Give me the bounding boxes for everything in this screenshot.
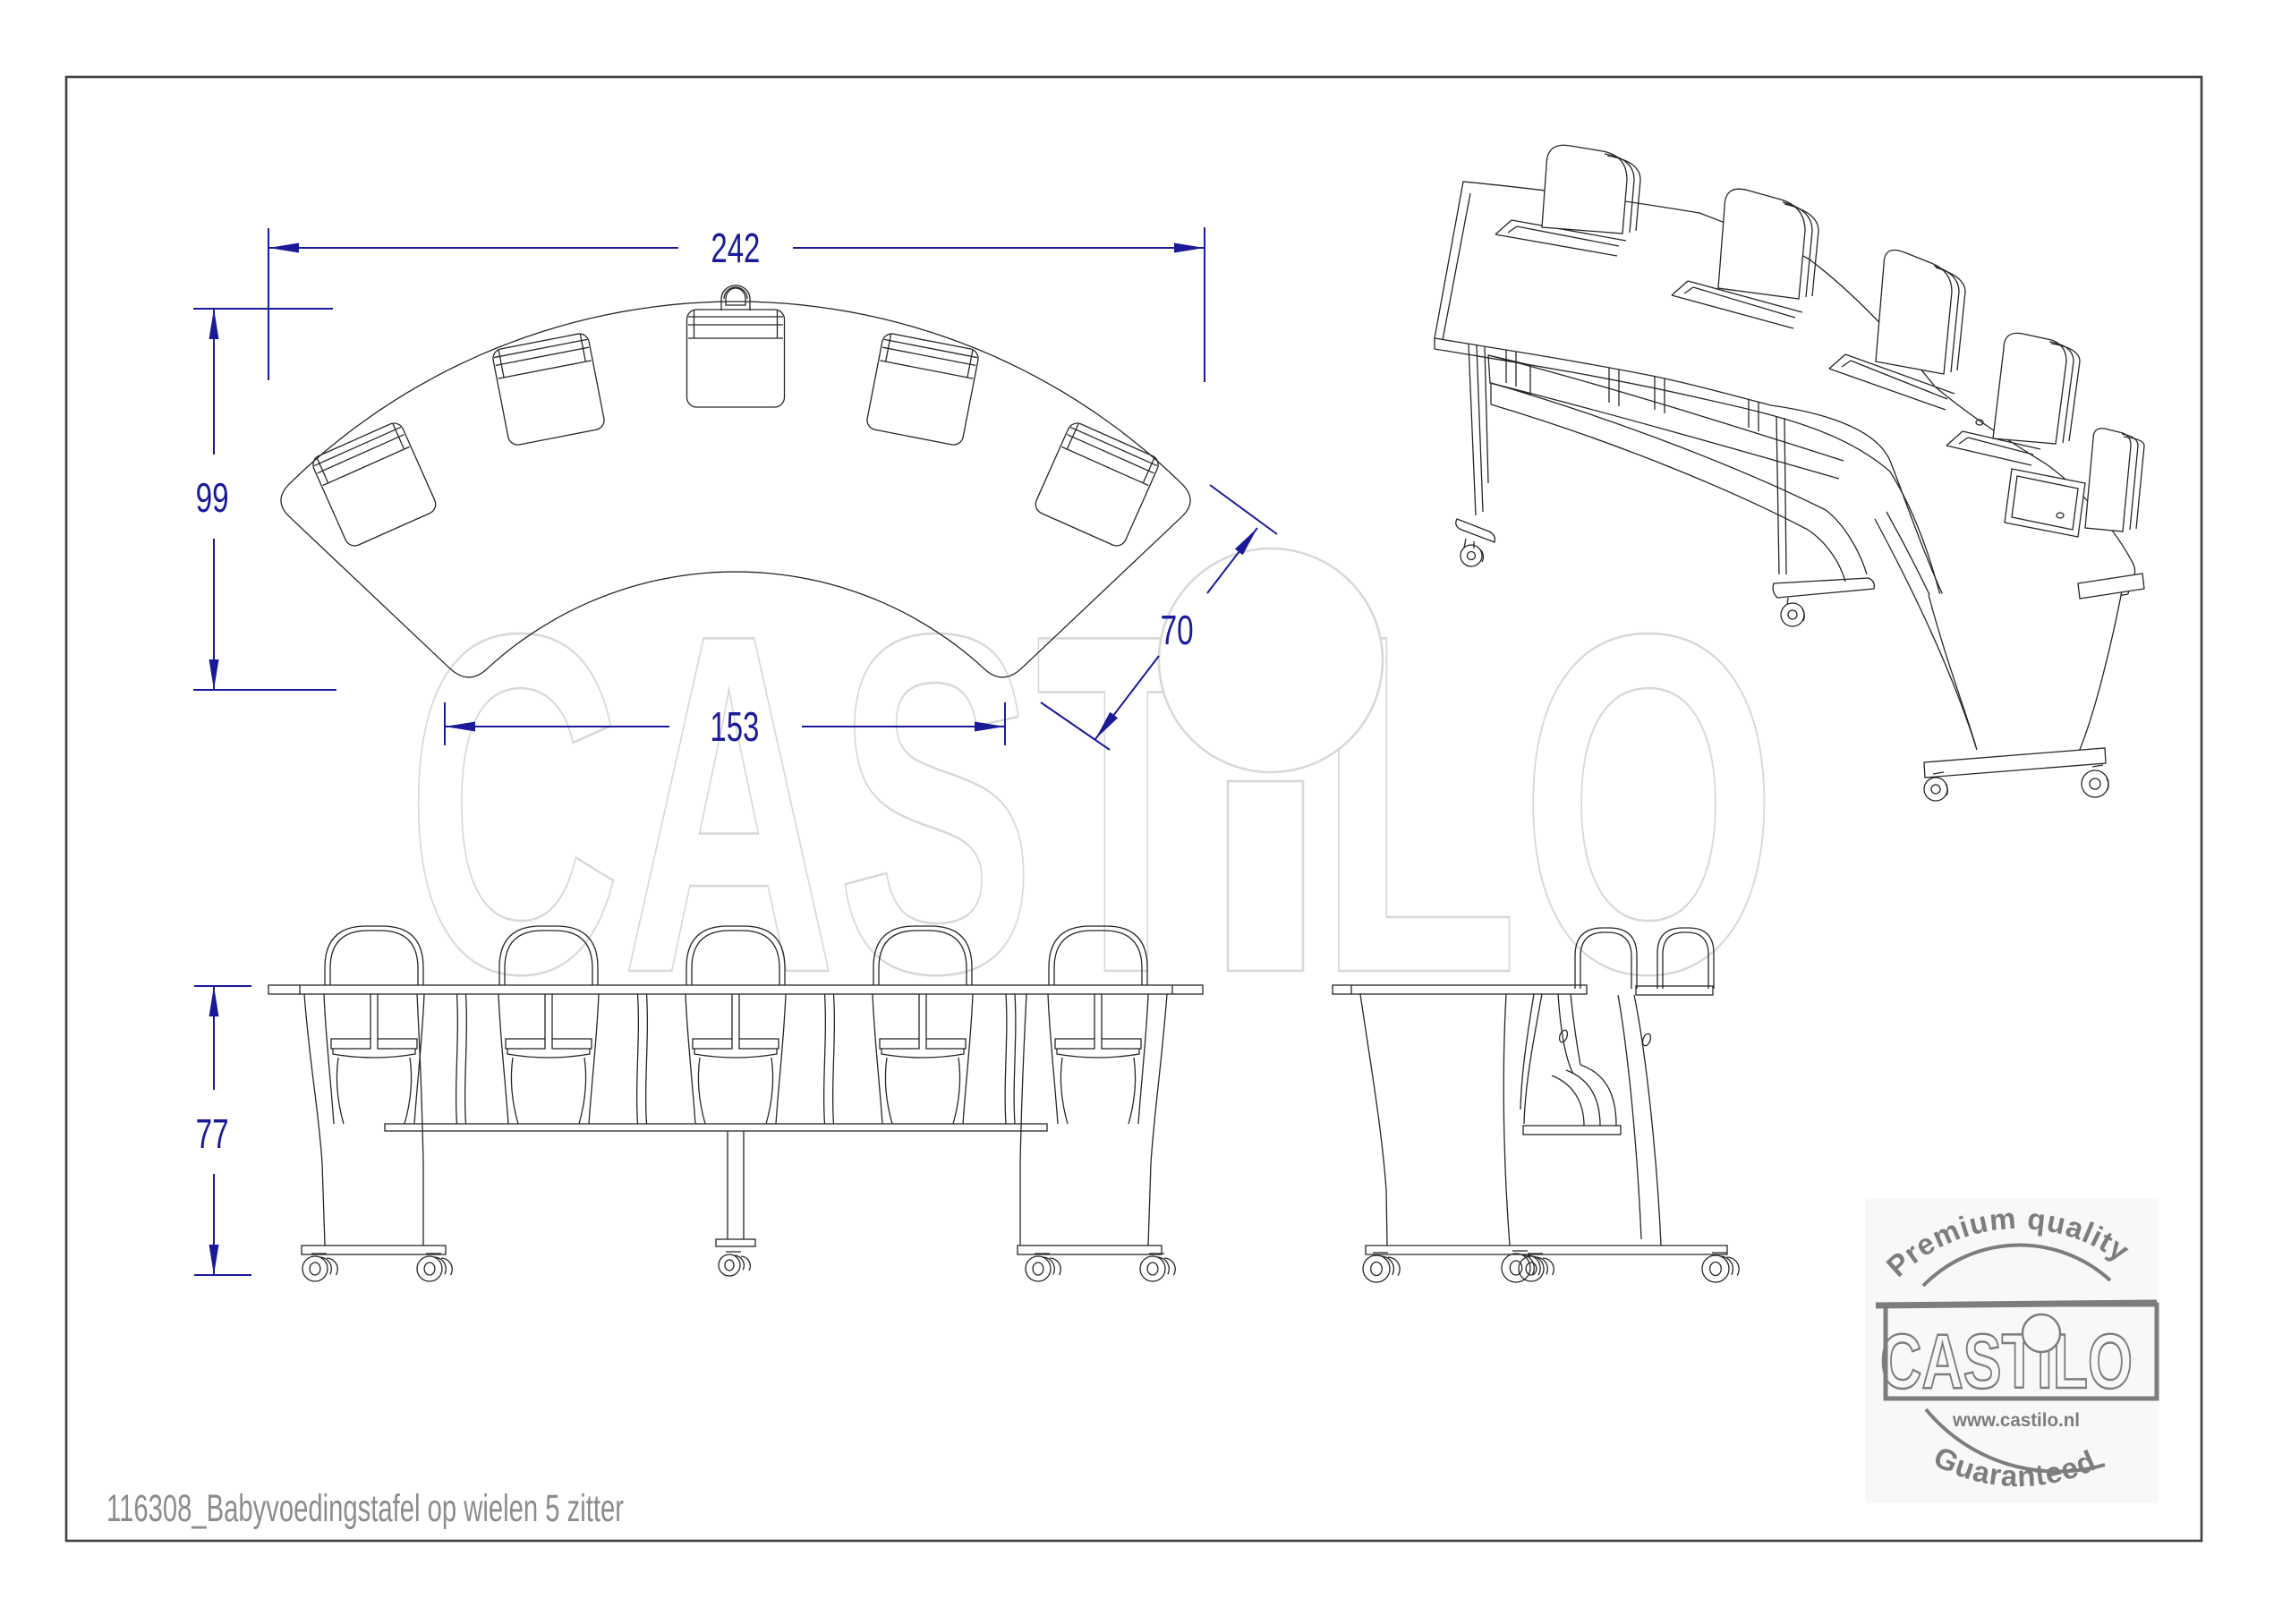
svg-text:116308_Babyvoedingstafel op wi: 116308_Babyvoedingstafel op wielen 5 zit… [106, 1487, 624, 1530]
svg-text:77: 77 [196, 1110, 229, 1157]
svg-text:242: 242 [711, 225, 760, 271]
svg-text:99: 99 [196, 474, 229, 521]
svg-text:153: 153 [710, 703, 759, 750]
svg-text:www.castilo.nl: www.castilo.nl [1952, 1410, 2080, 1431]
svg-text:LO: LO [1316, 534, 1778, 1074]
svg-text:CASTILO: CASTILO [1880, 1319, 2133, 1405]
svg-text:70: 70 [1161, 607, 1194, 653]
svg-text:CAST: CAST [406, 534, 1217, 1074]
